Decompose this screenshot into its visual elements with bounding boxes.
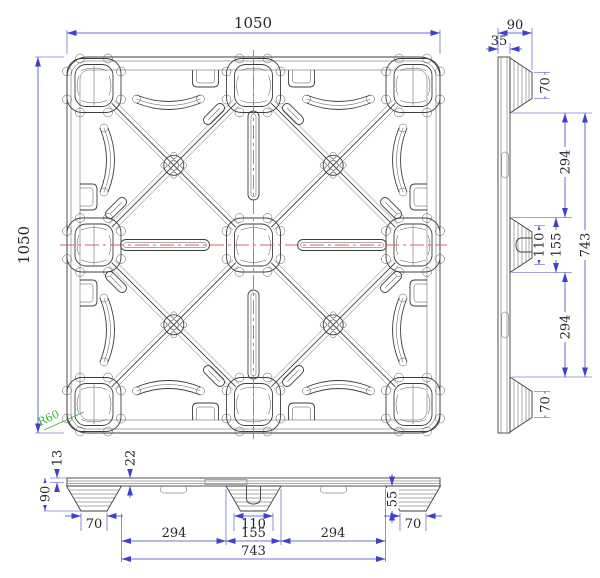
side-view-elevation: 90 35 70 294 110 155 743: [486, 18, 594, 433]
dim-side-overall-width: 90: [507, 18, 524, 33]
dim-front-deck-thickness: 22: [124, 450, 139, 467]
dim-front-left-gap: 294: [162, 526, 187, 541]
dim-top-width: 1050: [234, 14, 272, 32]
dim-side-deck-thickness: 35: [491, 34, 508, 49]
front-view-elevation: 13 22 90 70 110 70 55: [39, 447, 443, 562]
top-view-centerlines: [60, 50, 447, 440]
dim-front-top-lip: 13: [51, 450, 66, 467]
dim-front-overall-height: 90: [39, 486, 54, 503]
front-view-geometry: [67, 478, 441, 511]
dim-front-left-foot: 70: [86, 517, 103, 532]
dim-side-bottom-foot: 70: [539, 396, 554, 413]
dim-side-lower-gap: 294: [559, 315, 574, 340]
dim-side-center-foot-base: 155: [550, 233, 565, 258]
dim-front-center-foot-base: 155: [241, 526, 266, 541]
side-view-geometry: [498, 57, 532, 433]
corner-radius-label: R60: [36, 408, 62, 429]
dim-front-right-foot-height: 55: [386, 491, 401, 508]
top-view-plan: 1050 1050 R60: [15, 14, 447, 440]
drawing-sheet: 1050 1050 R60 90: [0, 0, 600, 578]
front-view-dimensions: 13 22 90 70 110 70 55: [39, 447, 443, 562]
side-view-dimensions: 90 35 70 294 110 155 743: [486, 18, 594, 418]
dim-side-center-foot-tip: 110: [533, 233, 548, 258]
pallet-drawing: 1050 1050 R60 90: [0, 0, 600, 578]
dim-side-upper-gap: 294: [559, 150, 574, 175]
dim-side-top-foot: 70: [539, 77, 554, 94]
dim-front-right-gap: 294: [321, 526, 346, 541]
dim-front-feet-span: 743: [241, 544, 266, 559]
dim-left-height: 1050: [15, 226, 33, 264]
dim-front-right-foot: 70: [405, 517, 422, 532]
dim-side-feet-span: 743: [579, 233, 594, 258]
